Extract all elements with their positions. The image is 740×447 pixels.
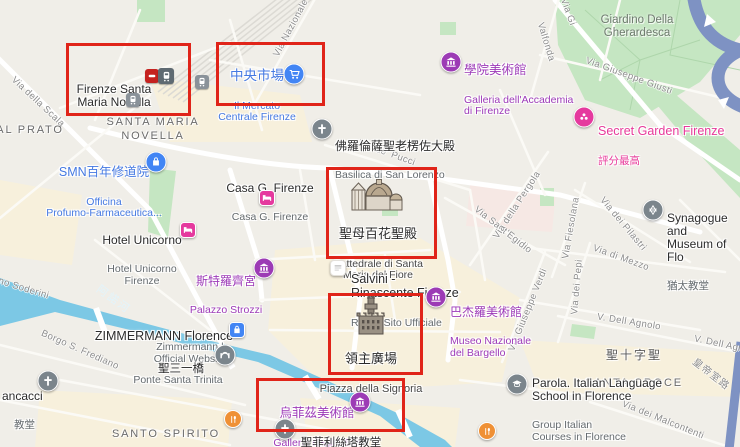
poi-name[interactable]: 斯特羅齊宮 [190, 275, 262, 288]
restaurant-icon[interactable] [478, 422, 496, 440]
poi-name[interactable]: SMN百年修道院 [46, 166, 162, 180]
museum-icon[interactable] [426, 287, 447, 308]
poi-subtitle[interactable]: Galleria dell'Accademia di Firenze [464, 95, 573, 118]
highlight-box-uffizi [256, 378, 405, 432]
flower-icon[interactable] [574, 107, 595, 128]
star-of-david-icon[interactable] [643, 200, 664, 221]
highlight-box-mercato [216, 42, 325, 106]
bridge-icon[interactable] [215, 345, 236, 366]
church-cross-icon[interactable] [38, 371, 59, 392]
highlight-box-station [66, 43, 191, 116]
park-label-gherardesca: Giardino Della Gherardesca [601, 14, 674, 40]
poi-ponte-santa-trinita-sub[interactable]: Ponte Santa Trinita [133, 358, 222, 404]
poi-subtitle[interactable]: Hotel Unicorno Firenze [102, 264, 181, 287]
poi-bargello[interactable]: 巴杰羅美術館 Museo Nazionale del Bargello [450, 289, 531, 376]
poi-subtitle[interactable]: 評分最高 [598, 156, 724, 167]
bed-icon[interactable] [180, 222, 196, 238]
poi-name[interactable]: 佛羅倫薩聖老楞佐大殿 [335, 140, 455, 153]
poi-parola-school[interactable]: Parola. Italian Language School in Flore… [532, 360, 662, 447]
restaurant-icon[interactable] [224, 410, 242, 428]
poi-subtitle[interactable]: Museo Nazionale del Bargello [450, 336, 531, 359]
poi-brancacci[interactable]: ancacci 教堂 [2, 373, 43, 447]
poi-name[interactable]: 巴杰羅美術館 [450, 306, 531, 319]
poi-name[interactable]: Secret Garden Firenze [598, 125, 724, 139]
poi-name[interactable]: 學院美術館 [464, 64, 573, 78]
poi-subtitle[interactable]: 教堂 [2, 420, 43, 431]
poi-subtitle[interactable]: Group Italian Courses in Florence [532, 420, 662, 443]
poi-hotel-unicorno[interactable]: Hotel Unicorno Hotel Unicorno Firenze [102, 217, 181, 304]
shopping-bag-icon[interactable] [146, 152, 167, 173]
poi-name[interactable]: 聖菲利絲塔教堂 [286, 437, 396, 447]
shopping-bag-icon[interactable] [229, 322, 245, 338]
poi-subtitle[interactable]: Casa G. Firenze [226, 212, 313, 223]
highlight-box-signoria [328, 293, 423, 375]
museum-icon[interactable] [254, 258, 275, 279]
poi-name[interactable]: Hotel Unicorno [102, 234, 181, 247]
bed-icon[interactable] [259, 190, 275, 206]
poi-synagogue[interactable]: Synagogue and Museum of Flo 猶太教堂 [667, 195, 740, 310]
district-label-santo-spirito: SANTO SPIRITO [112, 428, 220, 442]
poi-name[interactable]: Parola. Italian Language School in Flore… [532, 377, 662, 403]
highlight-box-duomo [326, 167, 437, 259]
poi-name[interactable]: Synagogue and Museum of Flo [667, 212, 740, 264]
poi-subtitle[interactable]: Ponte Santa Trinita [133, 375, 222, 386]
district-label-al-prato: AL PRATO [0, 124, 64, 138]
church-cross-icon[interactable] [312, 119, 333, 140]
museum-icon[interactable] [441, 52, 462, 73]
map-viewport[interactable]: SANTA MARIA NOVELLA AL PRATO 聖十字聖 SANTA … [0, 0, 740, 447]
poi-subtitle[interactable]: 猶太教堂 [667, 281, 740, 292]
poi-galleria-accademia[interactable]: 學院美術館 Galleria dell'Accademia di Firenze [464, 47, 573, 135]
rinascente-logo[interactable] [330, 260, 346, 276]
graduation-cap-icon[interactable] [507, 374, 528, 395]
poi-name[interactable]: ancacci [2, 390, 43, 403]
train-icon[interactable] [195, 75, 209, 89]
poi-secret-garden[interactable]: Secret Garden Firenze 評分最高 [598, 108, 724, 185]
